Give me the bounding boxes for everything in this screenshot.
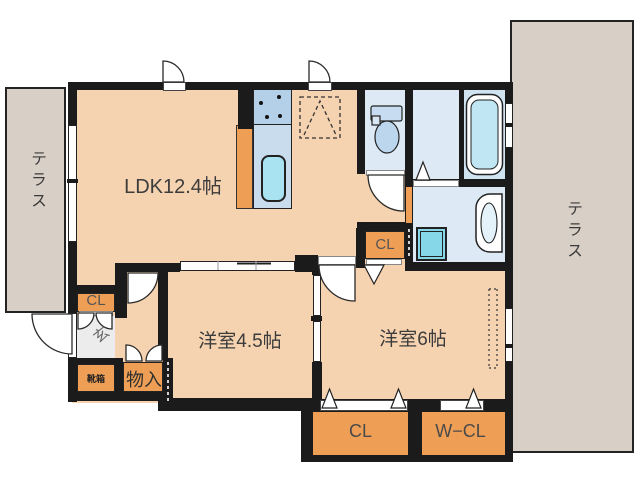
washroom-door-sill bbox=[413, 180, 459, 187]
kitchen-sink bbox=[261, 155, 286, 202]
washing-machine-inner bbox=[420, 231, 443, 257]
washroom-floor bbox=[411, 88, 461, 180]
walkin-closet-label: W−CL bbox=[413, 421, 508, 442]
storage-label: 物入 bbox=[114, 366, 174, 392]
front-door bbox=[32, 314, 72, 354]
walkin-closet-sill bbox=[440, 400, 484, 411]
wall-kitchen-stub bbox=[238, 82, 253, 129]
south-closet-sill bbox=[320, 400, 408, 411]
western-room6-label: 洋室6帖 bbox=[353, 324, 473, 351]
window-western6-east bbox=[505, 308, 513, 362]
wall-divider45-6-bottom bbox=[312, 362, 322, 398]
entrance-closet-label: CL bbox=[76, 292, 116, 309]
window-ldk-west bbox=[68, 125, 77, 242]
south-closet-label: CL bbox=[313, 421, 408, 442]
sliding-partition-room45-top bbox=[180, 261, 295, 271]
wall-bottom-room45 bbox=[158, 398, 322, 411]
window-bath-east bbox=[505, 103, 513, 148]
ldk-label: LDK12.4帖 bbox=[113, 170, 233, 199]
door-sill-top-2 bbox=[308, 82, 332, 91]
wall-room45-left bbox=[158, 263, 168, 360]
toilet-door-sill bbox=[366, 170, 405, 176]
hall-closet-label: CL bbox=[365, 236, 405, 253]
entrance-doorway bbox=[68, 313, 77, 358]
wall-top bbox=[72, 82, 512, 90]
door-top-2 bbox=[309, 61, 330, 82]
door-sill-top-1 bbox=[163, 82, 186, 91]
doorway-western6 bbox=[318, 256, 356, 265]
wall-toilet-right bbox=[405, 82, 413, 264]
sliding-door-divider-lower bbox=[313, 321, 321, 362]
washing-machine-pan bbox=[416, 227, 447, 261]
kitchen-cabinet bbox=[236, 125, 253, 209]
western-room45-label: 洋室4.5帖 bbox=[180, 326, 300, 353]
wall-toilet-left bbox=[357, 82, 365, 174]
shoe-cabinet-label: 靴箱 bbox=[80, 372, 112, 385]
terrace-left-label: テラス bbox=[24, 150, 48, 213]
sliding-door-divider-upper bbox=[313, 275, 321, 316]
floorplan-canvas: テラス テラス LDK12.4帖 洋室4.5帖 洋室6帖 CL CL CL W−… bbox=[0, 0, 640, 480]
toilet-room-floor bbox=[365, 88, 407, 173]
terrace-right-label: テラス bbox=[560, 200, 584, 263]
wall-hall-closet-left bbox=[356, 228, 365, 268]
wall-bath-divider bbox=[459, 88, 464, 182]
bathroom-floor bbox=[461, 88, 507, 180]
door-top-1 bbox=[163, 61, 184, 82]
wall-above-hall-closet bbox=[357, 222, 413, 231]
kitchen-counter-stove bbox=[253, 88, 292, 124]
hall-closet-sill bbox=[366, 259, 402, 265]
wall-cabinet-inset bbox=[406, 187, 412, 223]
wall-under-laundry bbox=[405, 262, 513, 271]
